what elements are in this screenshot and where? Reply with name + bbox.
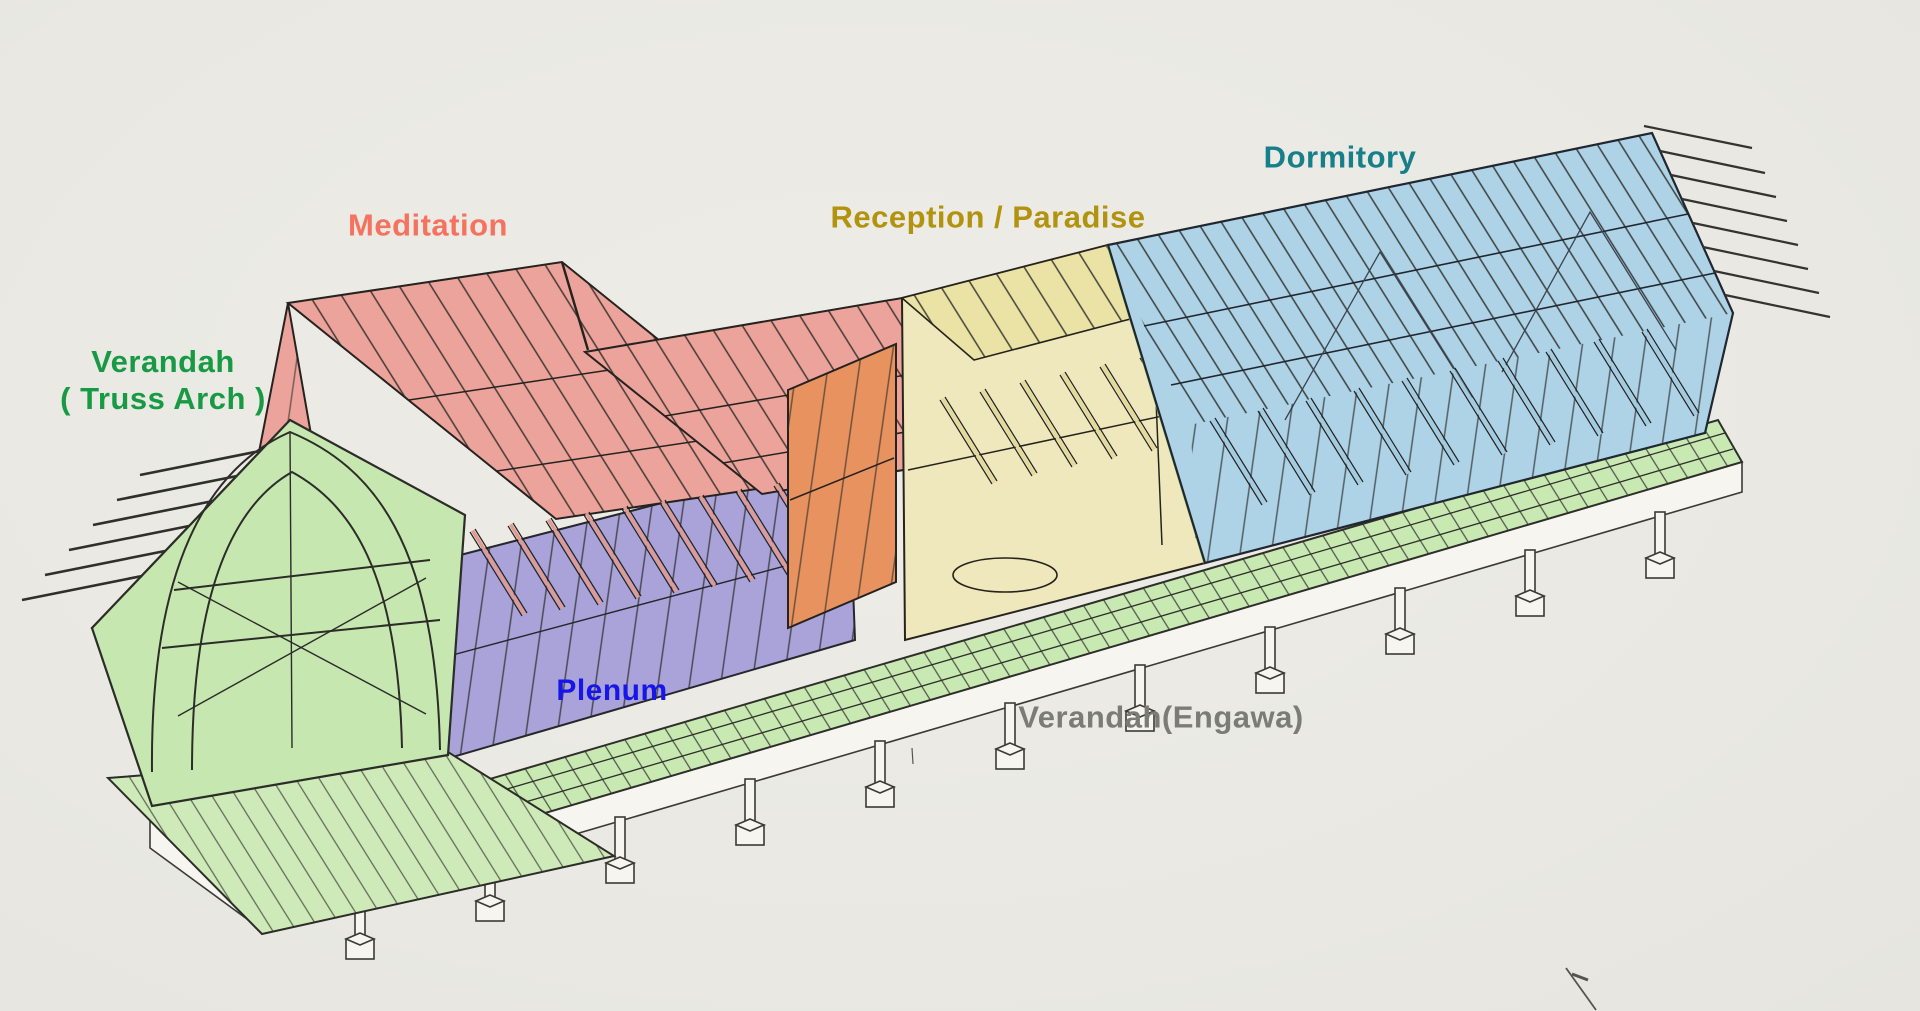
label-plenum: Plenum	[556, 673, 667, 709]
architectural-diagram: Verandah ( Truss Arch ) Meditation Recep…	[0, 0, 1920, 1011]
label-dormitory: Dormitory	[1264, 138, 1417, 175]
label-verandah-line2: ( Truss Arch )	[60, 380, 266, 417]
zone-orange-gable-wall	[788, 344, 896, 628]
label-meditation: Meditation	[348, 206, 508, 243]
label-reception-paradise: Reception / Paradise	[831, 198, 1146, 235]
stray-mark	[912, 748, 1596, 1010]
label-verandah-truss-arch: Verandah ( Truss Arch )	[60, 343, 266, 417]
label-verandah-engawa: Verandah(Engawa)	[1018, 698, 1303, 735]
label-verandah-line1: Verandah	[91, 344, 235, 379]
timber-frame-isometric-drawing	[0, 0, 1920, 1011]
